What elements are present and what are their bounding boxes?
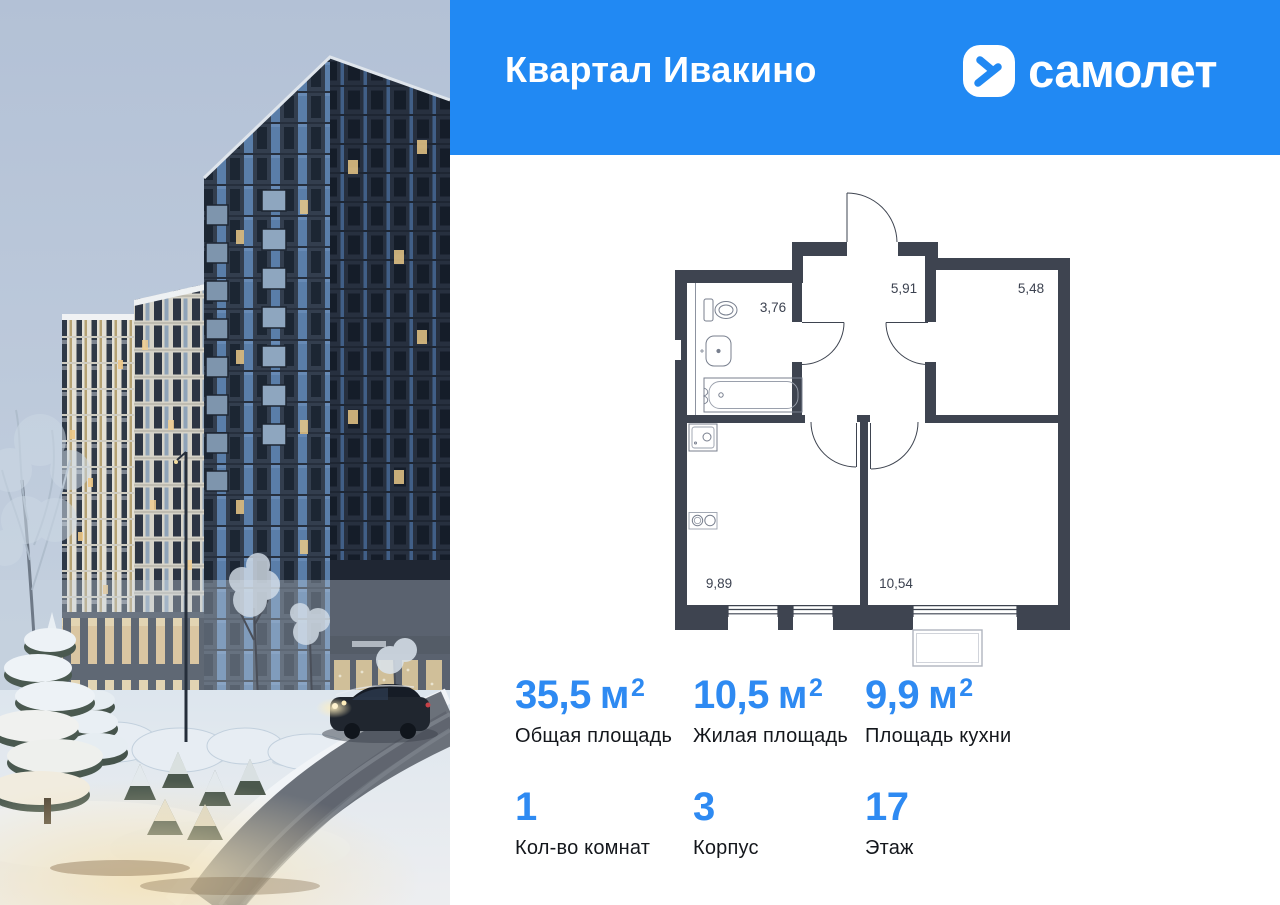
stat-value: 10,5м2 (693, 675, 848, 715)
room-area-label: 5,91 (891, 281, 917, 296)
walls (675, 242, 1070, 630)
header-banner: Квартал Ивакино самолет (450, 0, 1280, 155)
stat-label: Жилая площадь (693, 725, 848, 748)
room-area-label: 10,54 (879, 576, 913, 591)
stat-label: Общая площадь (515, 725, 672, 748)
toilet-icon (704, 299, 737, 321)
stat-label: Этаж (865, 837, 914, 860)
kitchen-sink-icon (689, 424, 717, 451)
stat-floor: 17 Этаж (865, 787, 914, 860)
floor-plan: 3,76 5,91 5,48 9,89 10,54 (660, 180, 1080, 680)
info-panel: Квартал Ивакино самолет (450, 0, 1280, 905)
stat-unit: м (778, 673, 807, 717)
wall-joint (675, 340, 681, 360)
stat-kitchen-area: 9,9м2 Площадь кухни (865, 675, 1011, 748)
sink-icon (700, 336, 731, 366)
samolet-logo: самолет (963, 45, 1217, 97)
stat-value: 1 (515, 787, 650, 827)
stove-icon (689, 513, 717, 530)
stat-label: Корпус (693, 837, 759, 860)
dirt-patch (140, 877, 320, 895)
stat-rooms: 1 Кол-во комнат (515, 787, 650, 860)
stat-label: Площадь кухни (865, 725, 1011, 748)
stat-unit-sup: 2 (959, 676, 972, 701)
samolet-logo-text: самолет (1028, 45, 1217, 97)
project-title: Квартал Ивакино (505, 49, 817, 91)
stat-label: Кол-во комнат (515, 837, 650, 860)
stat-living-area: 10,5м2 Жилая площадь (693, 675, 848, 748)
stat-unit-sup: 2 (631, 676, 644, 701)
room-area-label: 5,48 (1018, 281, 1044, 296)
stat-unit-sup: 2 (809, 676, 822, 701)
stat-unit: м (928, 673, 957, 717)
balcony (913, 630, 982, 666)
room-area-labels: 3,76 5,91 5,48 9,89 10,54 (706, 281, 1044, 591)
room-area-label: 9,89 (706, 576, 732, 591)
fixtures (689, 299, 802, 529)
stat-building: 3 Корпус (693, 787, 759, 860)
stat-value: 3 (693, 787, 759, 827)
bathtub-icon (704, 378, 802, 412)
stat-value: 35,5м2 (515, 675, 672, 715)
project-photo (0, 0, 450, 905)
stat-total-area: 35,5м2 Общая площадь (515, 675, 672, 748)
stat-unit: м (600, 673, 629, 717)
dirt-patch (50, 860, 190, 876)
stat-value: 9,9м2 (865, 675, 1011, 715)
samolet-logo-icon (963, 45, 1015, 97)
entrance-door-arc (847, 193, 897, 242)
taillight (426, 703, 431, 708)
listing-card: Квартал Ивакино самолет (0, 0, 1280, 905)
stat-value: 17 (865, 787, 914, 827)
room-area-label: 3,76 (760, 300, 786, 315)
